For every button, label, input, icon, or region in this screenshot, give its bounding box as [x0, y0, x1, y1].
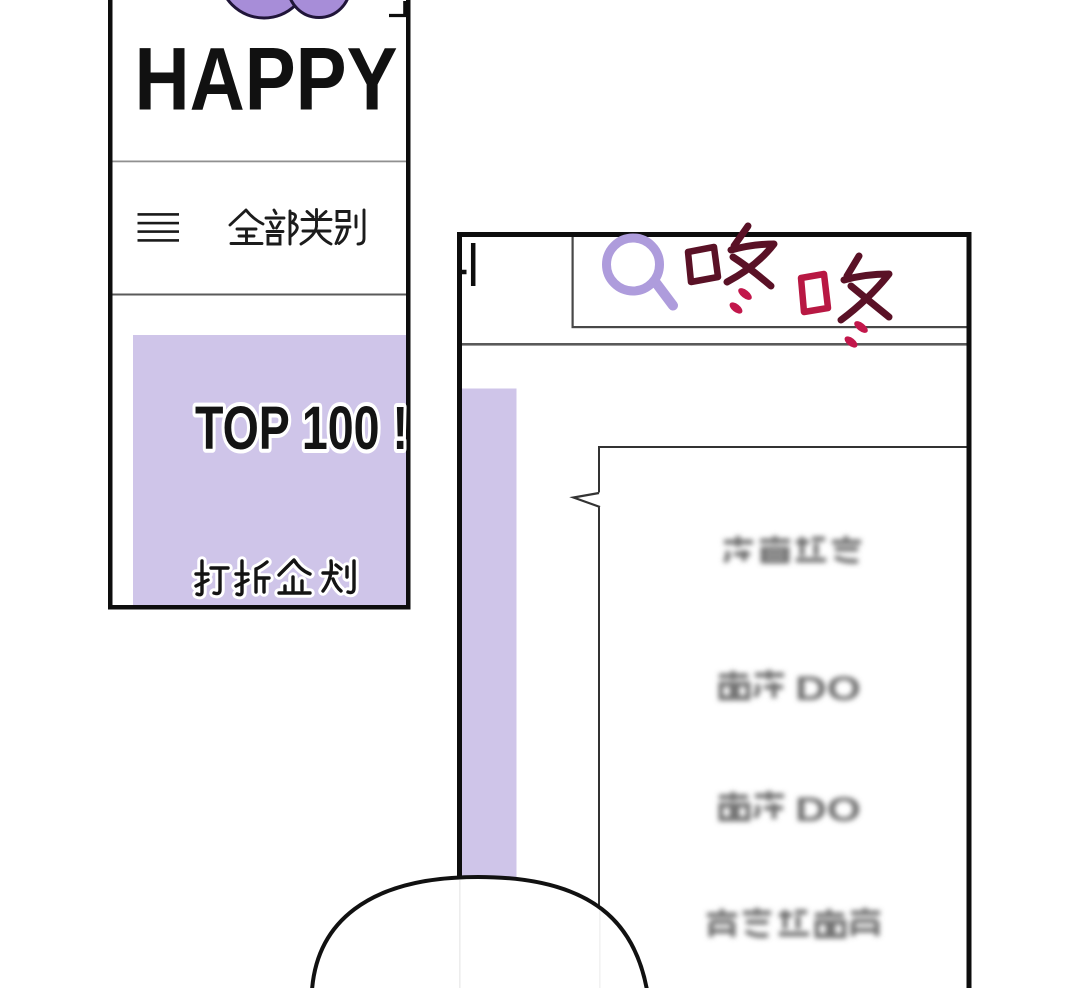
svg-text:HAPPY: HAPPY	[135, 29, 398, 129]
svg-text:DO: DO	[795, 791, 861, 829]
svg-text:DO: DO	[795, 670, 861, 708]
svg-text:TOP 100 !: TOP 100 !	[195, 394, 408, 463]
